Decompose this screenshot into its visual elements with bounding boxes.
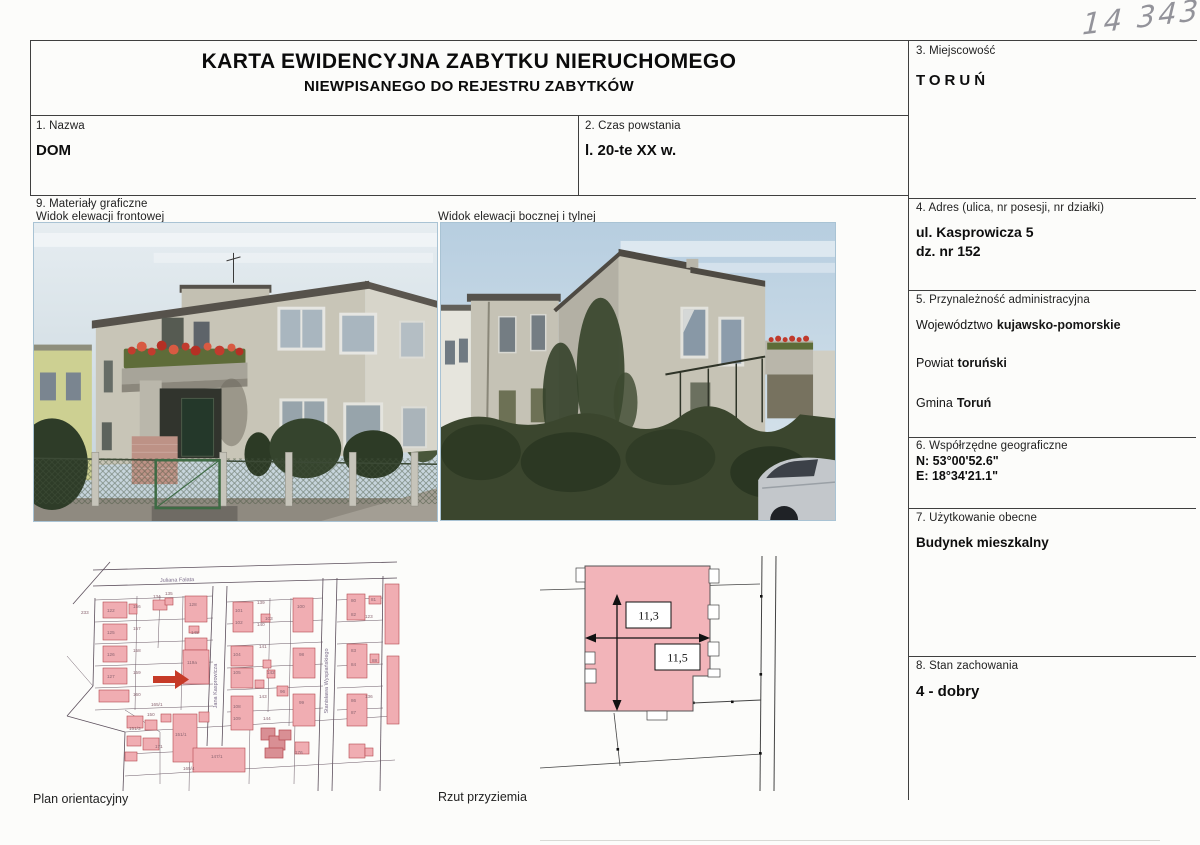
window xyxy=(531,315,546,351)
card-title: KARTA EWIDENCYJNA ZABYTKU NIERUCHOMEGO xyxy=(30,50,908,74)
window-upper-2 xyxy=(718,317,744,367)
parcel-number: 140 xyxy=(257,622,265,627)
field-wspolrzedne-label: 6. Współrzędne geograficzne xyxy=(916,440,1068,452)
window xyxy=(499,317,516,353)
title-bottom-line xyxy=(30,115,908,116)
parcel-number: 158 xyxy=(133,648,141,653)
plan-dim-box-width: 11,5 xyxy=(655,644,700,670)
street-label-top: Juliana Fałata xyxy=(160,577,195,584)
field-przynaleznosc-label: 5. Przynależność administracyjna xyxy=(916,294,1090,306)
parcel-number: 98 xyxy=(299,652,305,657)
parcel-number: 136 xyxy=(365,694,373,699)
height-dimension-value: 11,3 xyxy=(638,609,659,623)
field-wojewodztwo: Województwokujawsko-pomorskie xyxy=(916,318,1121,332)
section7-top-line xyxy=(908,508,1196,509)
window-upper-1 xyxy=(680,307,708,359)
parcel-number: 150 xyxy=(147,712,155,717)
parcel-number: 233 xyxy=(81,610,89,615)
parcel-number: 135 xyxy=(165,591,173,596)
field-miejscowosc-label: 3. Miejscowość xyxy=(916,45,995,57)
field-miejscowosc-value: TORUŃ xyxy=(916,72,989,89)
field-adres-line2: dz. nr 152 xyxy=(916,243,981,259)
parcel-number: 144 xyxy=(263,716,271,721)
parcel-number: 108 xyxy=(233,704,241,709)
parcel-number: 80 xyxy=(351,598,357,603)
plan-caption: Rzut przyziemia xyxy=(438,790,527,804)
section6-top-line xyxy=(908,437,1196,438)
wojewodztwo-key: Województwo xyxy=(916,318,993,332)
parcel-number: 88 xyxy=(372,658,378,663)
field-nazwa-value: DOM xyxy=(36,142,71,159)
field-nazwa-label: 1. Nazwa xyxy=(36,120,85,132)
field-gmina: GminaToruń xyxy=(916,396,991,410)
orientation-map: Juliana Fałata Jana Kasprowicza Stanisła… xyxy=(65,556,400,791)
floor-plan-drawing: 11,3 11,5 xyxy=(540,556,790,791)
window xyxy=(104,361,113,393)
parcel-number: 123 xyxy=(365,614,373,619)
parcel-number: 157 xyxy=(133,626,141,631)
window xyxy=(102,422,112,450)
parcel-number: 103 xyxy=(265,616,273,621)
parcel-number: 156 xyxy=(133,604,141,609)
right-column-divider xyxy=(908,40,909,800)
parcel-number: 119a xyxy=(187,660,197,665)
parcel-number: 87 xyxy=(351,710,357,715)
section4-top-line xyxy=(908,198,1196,199)
parcel-number: 176 xyxy=(295,750,303,755)
parcel-number: 104 xyxy=(233,652,241,657)
parcel-number: 102 xyxy=(235,620,243,625)
parcel-number: 81 xyxy=(371,597,377,602)
parcel-number: 127 xyxy=(107,674,115,679)
card-subtitle: NIEWPISANEGO DO REJESTRU ZABYTKÓW xyxy=(30,78,908,95)
handwritten-number: 14 343 xyxy=(1082,0,1200,42)
parcel-number: 100 xyxy=(297,604,305,609)
photo-side-rear-elevation xyxy=(440,222,836,521)
field1-2-divider xyxy=(578,115,579,195)
parcel-number: 160 xyxy=(133,692,141,697)
parcel-number: 139 xyxy=(257,600,265,605)
field-adres-line1: ul. Kasprowicza 5 xyxy=(916,224,1033,240)
side-photo-illustration xyxy=(441,223,835,520)
street-label-vertical-2: Stanisława Wyspiańskiego xyxy=(324,648,330,713)
ground-floor-plan: 11,3 11,5 xyxy=(540,556,790,791)
parcel-number: 159 xyxy=(133,670,141,675)
section8-top-line xyxy=(908,656,1196,657)
upper-window-2 xyxy=(339,313,377,355)
wojewodztwo-value: kujawsko-pomorskie xyxy=(997,318,1121,332)
field-uzytkowanie-label: 7. Użytkowanie obecne xyxy=(916,512,1037,524)
parcel-number: 165/4 xyxy=(183,766,195,771)
parcel-number: 122 xyxy=(107,608,115,613)
parcel-number: 141 xyxy=(259,644,267,649)
fence xyxy=(34,452,437,508)
parcel-number: 171 xyxy=(155,744,163,749)
field-materialy-label: 9. Materiały graficzne xyxy=(36,198,148,210)
parcel-number: 151/1 xyxy=(175,732,187,737)
powiat-value: toruński xyxy=(958,356,1007,370)
field-stan-value: 4 - dobry xyxy=(916,683,979,700)
front-photo-illustration xyxy=(34,223,437,521)
window xyxy=(499,390,516,424)
field-czas-value: l. 20-te XX w. xyxy=(585,142,676,159)
cloud xyxy=(154,253,433,263)
neighbor-window-upper xyxy=(399,321,425,359)
parcel-number: 126 xyxy=(107,652,115,657)
parcel-number: 148 xyxy=(191,630,199,635)
field-adres-label: 4. Adres (ulica, nr posesji, nr działki) xyxy=(916,202,1104,214)
entrance-door xyxy=(182,398,214,456)
record-card-page: 14 343 KARTA EWIDENCYJNA ZABYTKU NIERUCH… xyxy=(0,0,1200,845)
powiat-key: Powiat xyxy=(916,356,954,370)
photo-front-elevation xyxy=(33,222,438,522)
gmina-key: Gmina xyxy=(916,396,953,410)
parcel-number: 142 xyxy=(267,670,275,675)
cloud xyxy=(34,233,437,247)
parcel-number: 134 xyxy=(153,594,161,599)
scan-edge-line xyxy=(540,840,1160,841)
parcel-number: 105 xyxy=(233,670,241,675)
parcel-number: 101 xyxy=(235,608,243,613)
field-stan-label: 8. Stan zachowania xyxy=(916,660,1018,672)
parcel-number: 147/1 xyxy=(211,754,223,759)
parcel-number: 143 xyxy=(259,694,267,699)
orientation-map-drawing: Juliana Fałata Jana Kasprowicza Stanisła… xyxy=(65,556,400,791)
parcel-number: 86 xyxy=(351,698,357,703)
parcel-number: 84 xyxy=(351,662,357,667)
parcel-number: 151/3 xyxy=(129,726,141,731)
parcel-number: 99 xyxy=(299,700,305,705)
upper-window-1 xyxy=(277,307,325,351)
parcel-number: 96 xyxy=(280,689,286,694)
street-label-vertical-1: Jana Kasprowicza xyxy=(213,663,219,709)
field-czas-label: 2. Czas powstania xyxy=(585,120,681,132)
parcel-number: 165/1 xyxy=(151,702,163,707)
coordinate-n: N: 53°00'52.6" xyxy=(916,454,999,468)
width-dimension-value: 11,5 xyxy=(667,651,688,665)
parcel-number: 125 xyxy=(107,630,115,635)
field-uzytkowanie-value: Budynek mieszkalny xyxy=(916,535,1049,550)
neighbor-window-lower xyxy=(401,406,427,448)
section9-top-line xyxy=(30,195,908,196)
parcel-number: 109 xyxy=(233,716,241,721)
coordinate-e: E: 18°34'21.1" xyxy=(916,469,998,483)
cloud xyxy=(621,241,835,257)
field-powiat: Powiattoruński xyxy=(916,356,1007,370)
parcel-number: 128 xyxy=(189,602,197,607)
gmina-value: Toruń xyxy=(957,396,991,410)
map-caption: Plan orientacyjny xyxy=(33,792,128,806)
top-border-line xyxy=(30,40,1197,41)
section5-top-line xyxy=(908,290,1196,291)
parcel-number: 83 xyxy=(351,648,357,653)
plan-dim-box-height: 11,3 xyxy=(626,602,671,628)
card-title-block: KARTA EWIDENCYJNA ZABYTKU NIERUCHOMEGO N… xyxy=(30,50,908,95)
parcel-number: 82 xyxy=(351,612,357,617)
